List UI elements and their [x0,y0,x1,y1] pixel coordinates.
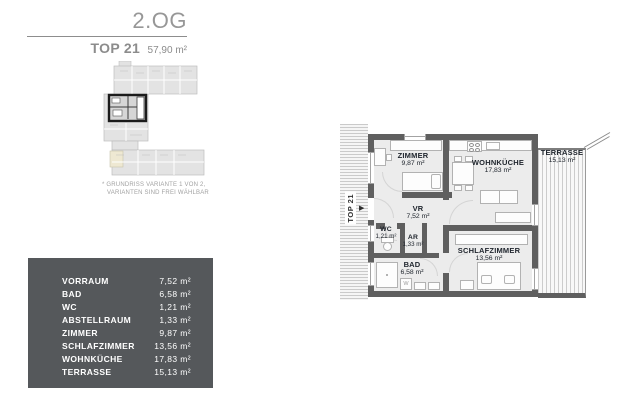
room-label-zimmer: ZIMMER 9,87 m² [398,151,429,167]
room-label-wohnkueche: WOHNKÜCHE 17,83 m² [472,158,524,174]
bath-sink-left [414,282,426,290]
entrance-door-opening [368,198,374,220]
kitchen-sink [486,142,500,150]
desk-zimmer [374,148,386,166]
header-divider [27,36,187,37]
variant-note: * GRUNDRISS VARIANTE 1 VON 2, VARIANTEN … [102,181,209,197]
row-value: 9,87 m² [159,327,191,340]
dining-chair [465,185,473,191]
wall-bedroom-left-lower [443,273,449,291]
room-name: ZIMMER [398,151,429,160]
room-area: 15,13 m² [541,157,583,164]
floor-title: 2.OG [27,8,187,34]
table-row: ABSTELLRAUM1,33 m² [62,314,191,327]
window-wc [368,225,374,242]
row-label: WC [62,301,159,314]
table-row: WC1,21 m² [62,301,191,314]
dresser-bedroom [460,280,474,290]
room-name: VR [406,204,429,213]
unit-title-line: TOP 21 57,90 m² [27,40,187,58]
closet-bedroom [455,234,528,245]
room-label-wc: WC 1,21 m² [376,226,397,240]
row-label: SCHLAFZIMMER [62,340,154,353]
site-overview-plan [98,61,222,179]
floorplan-page: 2.OG TOP 21 57,90 m² [0,0,620,410]
bath-sink-right [428,282,440,290]
row-value: 15,13 m² [154,366,191,379]
burner [469,148,474,152]
table-row: ZIMMER9,87 m² [62,327,191,340]
burner [475,148,480,152]
entrance-arrow-icon: ▶ [359,204,364,212]
roof-edge-line [584,132,610,148]
pillow-left [481,275,492,284]
room-label-bad: BAD 6,58 m² [400,260,423,276]
header: 2.OG TOP 21 57,90 m² [27,8,187,58]
pillow-right [504,275,515,284]
row-label: ABSTELLRAUM [62,314,159,327]
chair-zimmer [386,154,392,161]
window-bedroom-terrace [532,268,538,290]
variant-note-line1: * GRUNDRISS VARIANTE 1 VON 2, [102,181,209,189]
stove-icon [467,141,482,152]
room-label-terrasse: TERRASSE 15,13 m² [541,148,583,164]
wall-kitchen-bedroom [443,225,532,231]
row-label: ZIMMER [62,327,159,340]
room-name: BAD [400,260,423,269]
sideboard-kitchen [495,212,531,223]
unit-tag-vertical: TOP 21 [345,192,356,225]
room-area: 1,21 m² [376,233,397,240]
wall-bad-top [374,253,439,258]
wall-zimmer-kitchen [443,140,449,200]
terrace-area [538,148,586,298]
table-row: SCHLAFZIMMER13,56 m² [62,340,191,353]
row-label: BAD [62,288,159,301]
room-area: 6,58 m² [400,269,423,276]
table-row: BAD6,58 m² [62,288,191,301]
room-name: SCHLAFZIMMER [458,246,520,255]
washing-machine-label: W [400,281,412,287]
room-label-ar: AR 1,33 m² [403,234,424,248]
unit-title: TOP 21 [91,40,141,56]
room-area-table: VORRAUM7,52 m² BAD6,58 m² WC1,21 m² ABST… [28,258,213,388]
window-zimmer-top [404,134,426,140]
row-label: WOHNKÜCHE [62,353,154,366]
room-name: WOHNKÜCHE [472,158,524,167]
row-label: TERRASSE [62,366,154,379]
room-label-vr: VR 7,52 m² [406,204,429,220]
room-name: AR [403,234,424,241]
dining-chair [454,185,462,191]
variant-note-line2: VARIANTEN SIND FREI WÄHLBAR [102,189,209,197]
room-label-schlafzimmer: SCHLAFZIMMER 13,56 m² [458,246,520,262]
row-value: 13,56 m² [154,340,191,353]
table-row: TERRASSE15,13 m² [62,366,191,379]
window-zimmer [368,152,374,184]
row-value: 17,83 m² [154,353,191,366]
room-area: 7,52 m² [406,213,429,220]
wall-bedroom-left-upper [443,231,449,253]
toilet-icon [383,242,392,251]
row-value: 1,21 m² [159,301,191,314]
burner [469,143,474,147]
dining-table [452,162,474,185]
wardrobe-zimmer [390,140,442,151]
burner [475,143,480,147]
wall-zimmer-vr [402,192,452,198]
row-value: 6,58 m² [159,288,191,301]
row-value: 7,52 m² [159,275,191,288]
site-highlighted-unit [109,95,146,121]
room-name: WC [376,226,397,233]
room-area: 9,87 m² [398,160,429,167]
apartment-outline: W ZIMMER 9,87 m² WOHNKÜCHE 17,83 m² VR 7… [368,134,538,297]
row-label: VORRAUM [62,275,159,288]
room-area: 1,33 m² [403,241,424,248]
floor-plan: TOP 21 ▶ TERRASSE 15,13 m² [340,118,602,310]
room-area: 13,56 m² [458,255,520,262]
pillow-zimmer [431,174,441,189]
window-bad [368,262,374,286]
sofa-divider [499,191,500,203]
table-row: WOHNKÜCHE17,83 m² [62,353,191,366]
room-area: 17,83 m² [472,167,524,174]
row-value: 1,33 m² [159,314,191,327]
shower-drain [386,274,388,276]
terrace-door-kitchen [532,204,538,226]
room-name: TERRASSE [541,148,583,157]
table-row: VORRAUM7,52 m² [62,275,191,288]
unit-total-area: 57,90 m² [148,45,187,56]
